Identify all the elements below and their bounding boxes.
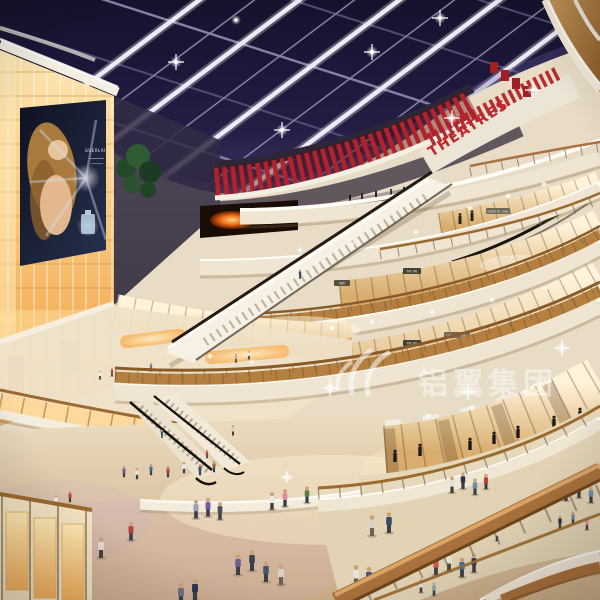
mall-atrium-render: GUERLAIN THEATRES (0, 0, 600, 600)
watermark-text: 铝翼集团 (418, 367, 558, 402)
vignette-overlay (0, 0, 600, 600)
atrium-scene: GUERLAIN THEATRES (0, 0, 600, 600)
